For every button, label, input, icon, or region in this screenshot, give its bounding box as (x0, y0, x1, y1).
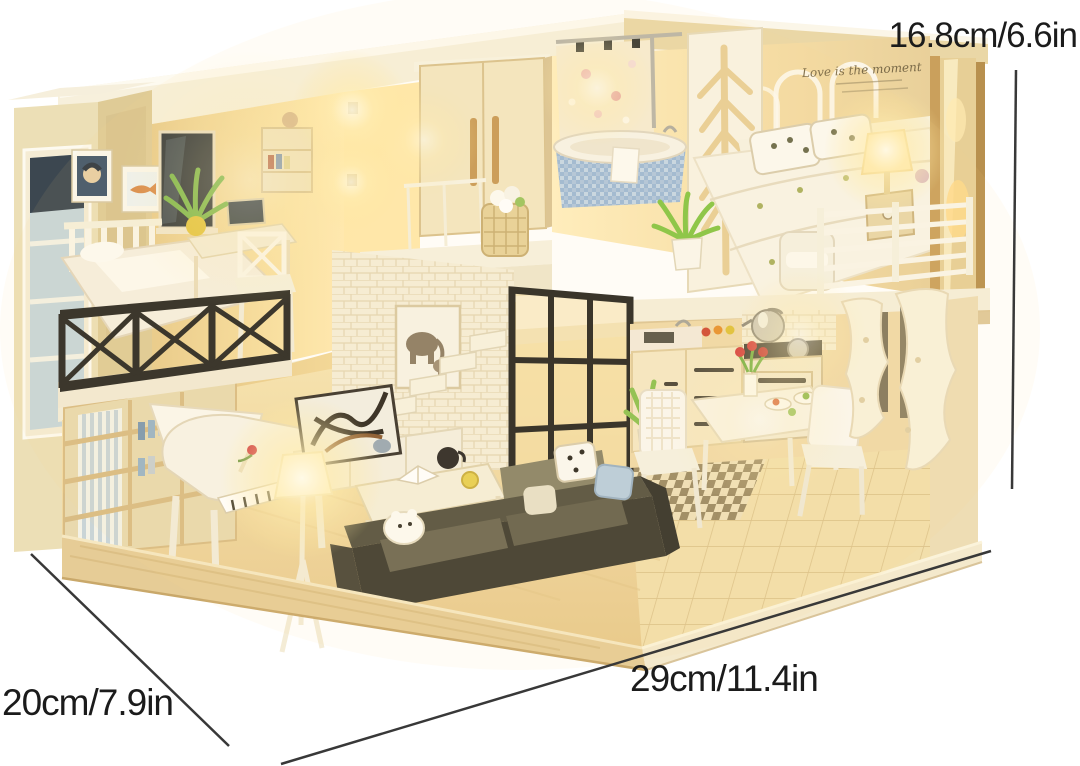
product-screenshot: Love is the moment (0, 0, 1080, 766)
width-dimension-label: 29cm/11.4in (630, 660, 818, 697)
dimension-lines (0, 0, 1080, 766)
height-dimension-line (1012, 70, 1016, 489)
depth-dimension-label: 20cm/7.9in (2, 684, 173, 721)
height-dimension-label: 16.8cm/6.6in (889, 18, 1077, 53)
